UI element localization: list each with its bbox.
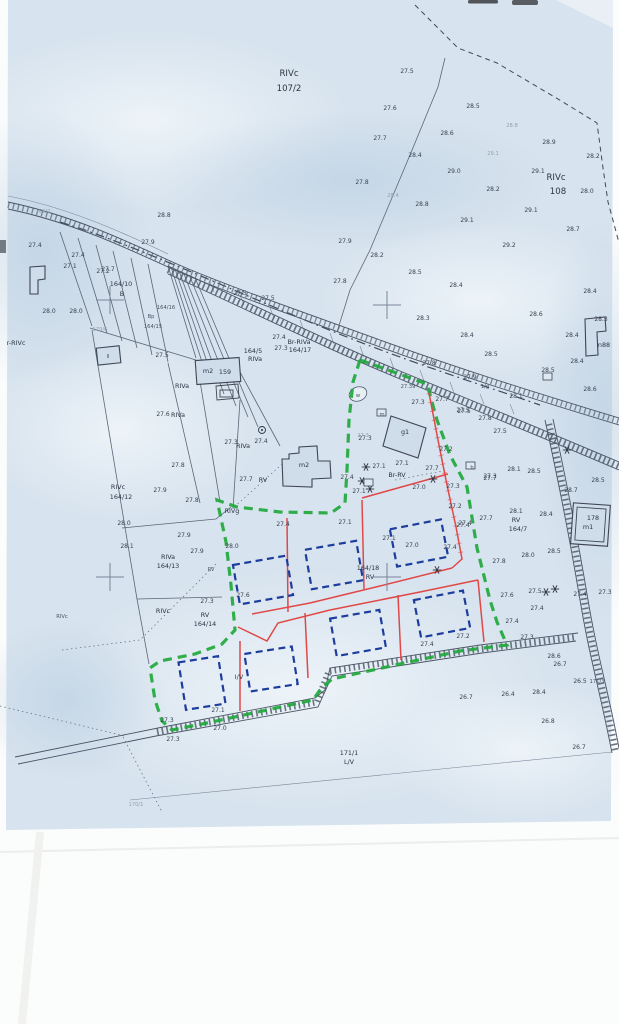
- map-label: 164/15: [144, 324, 162, 330]
- map-label: 27.6: [156, 411, 170, 418]
- map-label: 27.7: [435, 396, 449, 403]
- map-label: 27.1: [352, 488, 366, 495]
- map-label: 28.0: [521, 552, 535, 559]
- map-label: 27.3: [357, 433, 369, 439]
- map-label: 27.4: [272, 334, 286, 341]
- map-label: 27.7: [479, 515, 493, 522]
- map-label: 164/18: [357, 564, 379, 572]
- map-label: 27.1: [395, 460, 409, 467]
- map-label: 27.9: [153, 487, 167, 494]
- map-label: RIVa: [236, 442, 250, 450]
- map-label: 27.9: [338, 238, 352, 245]
- map-label: 28.0: [580, 188, 594, 195]
- map-label: 27.0: [405, 542, 419, 549]
- map-label: 108: [550, 187, 566, 197]
- map-label: 164/14: [194, 620, 216, 628]
- map-label: 164/16: [157, 305, 175, 311]
- map-label: 164/12: [110, 493, 132, 501]
- map-label: 27.7: [239, 476, 253, 483]
- map-label: 26.7: [459, 694, 473, 701]
- map-label: 28.3: [594, 316, 608, 323]
- map-label: I/V: [235, 673, 244, 681]
- map-label: RIVc: [56, 614, 68, 620]
- map-label: 27.3: [274, 345, 288, 352]
- map-label: 159: [219, 368, 231, 376]
- map-label: 107/2: [277, 84, 302, 94]
- map-label: 27.4: [71, 252, 85, 259]
- map-label: 27.8: [492, 558, 506, 565]
- map-label: 27.4: [573, 591, 587, 598]
- map-label: 171/3: [590, 679, 605, 685]
- map-label: 27.8: [185, 497, 199, 504]
- map-label: 27.2: [439, 446, 453, 453]
- map-label: 170/1: [129, 802, 144, 808]
- map-label: 28.0: [69, 308, 83, 315]
- map-label: RIVa: [171, 411, 185, 419]
- map-label: 171/1: [340, 749, 358, 757]
- map-label: 28.5: [466, 103, 480, 110]
- map-label: n88: [598, 341, 610, 349]
- map-label: 28.4: [539, 511, 553, 518]
- map-label: 28.6: [440, 130, 454, 137]
- map-label: 27.6: [500, 592, 514, 599]
- map-label: 28.2: [586, 153, 600, 160]
- map-label: 27.4: [443, 544, 457, 551]
- map-label: RIVg: [225, 507, 240, 515]
- map-label: RV: [201, 611, 210, 619]
- map-label: 27.5: [400, 68, 414, 75]
- map-label: 27.1: [382, 535, 396, 542]
- map-label: B: [120, 290, 124, 298]
- map-label: 27.5: [261, 295, 275, 302]
- map-label: 27.3: [160, 717, 174, 724]
- map-label: 27.3: [200, 598, 214, 605]
- map-label: 27.8: [333, 278, 347, 285]
- map-label: 27.0: [412, 484, 426, 491]
- map-label: 26.7: [553, 661, 567, 668]
- map-label: RV: [512, 516, 521, 524]
- map-label: 28.3: [416, 315, 430, 322]
- map-label: 27.3: [446, 483, 460, 490]
- map-label: 27.9: [177, 532, 191, 539]
- scanned-document-page: RIVc107/2RIVc10827.527.628.527.728.428.6…: [0, 0, 619, 1024]
- map-label: RIVa: [175, 382, 189, 390]
- map-label: 27.6: [236, 592, 250, 599]
- map-label: 27.1: [63, 263, 77, 270]
- map-label: 28.0: [117, 520, 131, 527]
- map-label: RIVc: [156, 607, 171, 615]
- map-label: 164/7: [509, 525, 527, 533]
- map-label: 27.4: [530, 605, 544, 612]
- map-label: 27.1: [338, 519, 352, 526]
- map-label: 28.1: [509, 508, 523, 515]
- map-label: 27.3: [411, 399, 425, 406]
- map-label: 27.6: [383, 105, 397, 112]
- map-label: 28.4: [408, 152, 422, 159]
- map-label: 26.5: [573, 678, 587, 685]
- map-label: 28.0: [225, 543, 239, 550]
- map-label: r-RIVc: [7, 339, 26, 347]
- map-label: 164/5: [244, 347, 262, 355]
- map-label: 27.5: [528, 588, 542, 595]
- map-label: 27.4: [28, 242, 42, 249]
- map-label: RV: [208, 567, 215, 573]
- map-label: 28.1: [509, 393, 523, 400]
- map-label: 28.4: [449, 282, 463, 289]
- map-label: 27.4: [276, 521, 290, 528]
- map-label: 179/6: [93, 327, 108, 333]
- map-label: 28.1: [120, 543, 134, 550]
- map-label: 28.7: [566, 226, 580, 233]
- map-label: RIVc: [111, 483, 126, 491]
- map-label: 27.9: [141, 239, 155, 246]
- map-label: 27.8: [355, 179, 369, 186]
- map-label: 27.4: [340, 474, 354, 481]
- map-label: 28.1: [507, 466, 521, 473]
- map-label: 27.1: [372, 463, 386, 470]
- map-label: 28.8: [415, 201, 429, 208]
- map-label: 27.4: [458, 520, 472, 527]
- map-label: 28.4: [583, 288, 597, 295]
- map-label: 27.5: [493, 428, 507, 435]
- map-label: 27.2: [456, 633, 470, 640]
- map-label: 28.5: [484, 351, 498, 358]
- map-label: 29.1: [531, 168, 545, 175]
- map-label: RV: [366, 573, 375, 581]
- cadastral-map: RIVc107/2RIVc10827.527.628.527.728.428.6…: [0, 0, 619, 1024]
- map-label: RIVc: [546, 173, 565, 183]
- map-label: 28.6: [547, 653, 561, 660]
- map-label: g1: [401, 428, 409, 436]
- map-label: Bp: [148, 314, 156, 320]
- map-label: 27.8: [478, 415, 492, 422]
- map-label: 28.9: [542, 139, 556, 146]
- map-label: 28.4: [565, 332, 579, 339]
- map-label: m2: [299, 461, 309, 469]
- map-label: 27.4: [420, 641, 434, 648]
- map-label: 27.3: [166, 736, 180, 743]
- map-label: 28.4: [387, 193, 399, 199]
- map-label: 26.4: [501, 691, 515, 698]
- utility-box-icon: [543, 373, 552, 380]
- map-label: 26.7: [572, 744, 586, 751]
- map-label: 27.4: [505, 618, 519, 625]
- map-label: 28.6: [529, 311, 543, 318]
- map-label: 27.2: [96, 268, 110, 275]
- map-label: 27.2: [448, 503, 462, 510]
- map-label: L/V: [344, 758, 355, 766]
- map-label: 27.9: [190, 548, 204, 555]
- map-label: 27.8: [171, 462, 185, 469]
- map-label: 27.8: [422, 360, 436, 367]
- map-label: 28.8: [157, 212, 171, 219]
- map-label: 28.4: [570, 358, 584, 365]
- map-label: 27.0: [213, 725, 227, 732]
- map-label: m: [379, 412, 384, 418]
- map-label: 28.4: [532, 689, 546, 696]
- map-label: 29.0: [447, 168, 461, 175]
- map-label: 28.5: [541, 367, 555, 374]
- map-label: 27.7: [483, 475, 497, 482]
- map-label: RIVc: [279, 69, 298, 79]
- map-label: 164/10: [110, 280, 132, 288]
- map-label: 27.5: [233, 290, 247, 297]
- map-label: 26.8: [541, 718, 555, 725]
- map-label: 29.2: [502, 242, 516, 249]
- map-label: 28.5: [408, 269, 422, 276]
- map-label: 29.1: [460, 217, 474, 224]
- map-label: II: [106, 354, 110, 360]
- map-label: 27.3: [520, 634, 534, 641]
- map-label: 166/2: [36, 209, 51, 215]
- map-label: 28.6: [583, 386, 597, 393]
- map-label: Br-RV: [388, 471, 406, 479]
- map-label: 28.4: [460, 332, 474, 339]
- map-label: 164/13: [157, 562, 179, 570]
- map-label: 28.7: [564, 487, 578, 494]
- map-label: 1/g: [481, 384, 489, 390]
- map-label: 27.1: [211, 707, 225, 714]
- map-label: 27.39: [401, 384, 416, 390]
- map-label: 28.8: [506, 123, 518, 129]
- map-label: 29.1: [487, 151, 499, 157]
- map-label: 28.2: [370, 252, 384, 259]
- map-label: 178: [587, 514, 599, 522]
- map-label: 29.1: [524, 207, 538, 214]
- map-label: 27.4: [254, 438, 268, 445]
- map-label: 27.5: [456, 407, 470, 414]
- map-label: 164/17: [289, 346, 311, 354]
- map-label: 27.9: [463, 374, 477, 381]
- map-label: 27.7: [425, 465, 439, 472]
- map-label: 28.5: [547, 548, 561, 555]
- utility-box-icon: [364, 479, 373, 486]
- map-label: 28.5: [591, 477, 605, 484]
- map-label: 28.2: [486, 186, 500, 193]
- map-label: Br-RIVa: [287, 338, 310, 346]
- map-label: 28.5: [527, 468, 541, 475]
- map-label: 27.5: [155, 352, 169, 359]
- map-label: RIVa: [161, 553, 175, 561]
- map-label: m2: [203, 367, 213, 375]
- map-label: m1: [583, 523, 593, 531]
- map-label: RV: [259, 476, 268, 484]
- map-label: 27.7: [373, 135, 387, 142]
- map-label: 28.0: [42, 308, 56, 315]
- map-label: 27.3: [598, 589, 612, 596]
- map-label: RIVa: [248, 355, 262, 363]
